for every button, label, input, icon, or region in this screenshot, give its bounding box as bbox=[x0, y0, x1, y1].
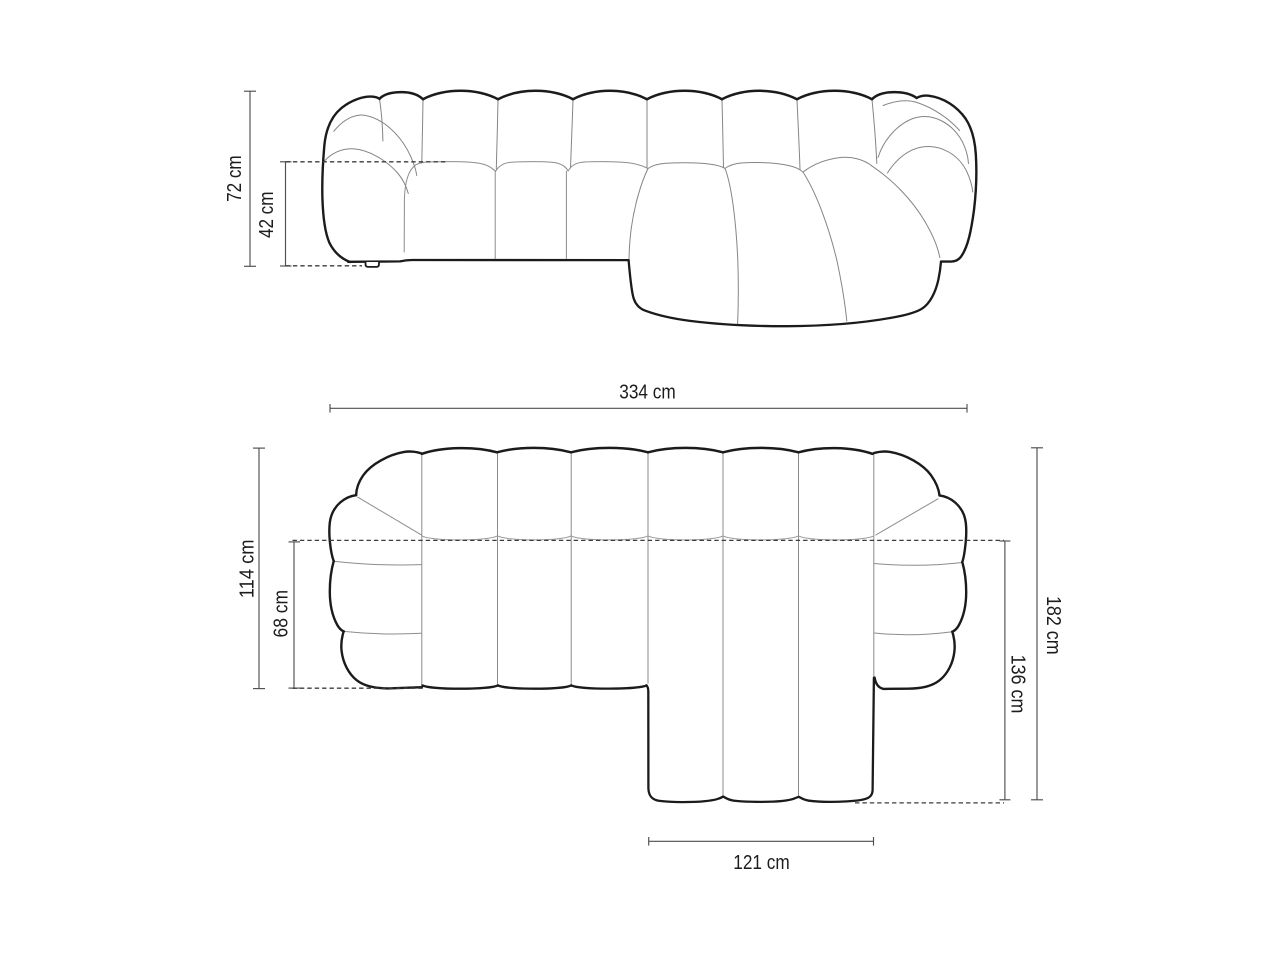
svg-text:68 cm: 68 cm bbox=[271, 590, 293, 638]
svg-text:136 cm: 136 cm bbox=[1007, 655, 1029, 714]
svg-text:334 cm: 334 cm bbox=[619, 381, 676, 403]
svg-text:72 cm: 72 cm bbox=[224, 155, 246, 202]
svg-text:121 cm: 121 cm bbox=[733, 852, 790, 874]
svg-text:114 cm: 114 cm bbox=[236, 539, 258, 598]
svg-text:42 cm: 42 cm bbox=[256, 192, 278, 239]
svg-text:182 cm: 182 cm bbox=[1042, 596, 1064, 655]
